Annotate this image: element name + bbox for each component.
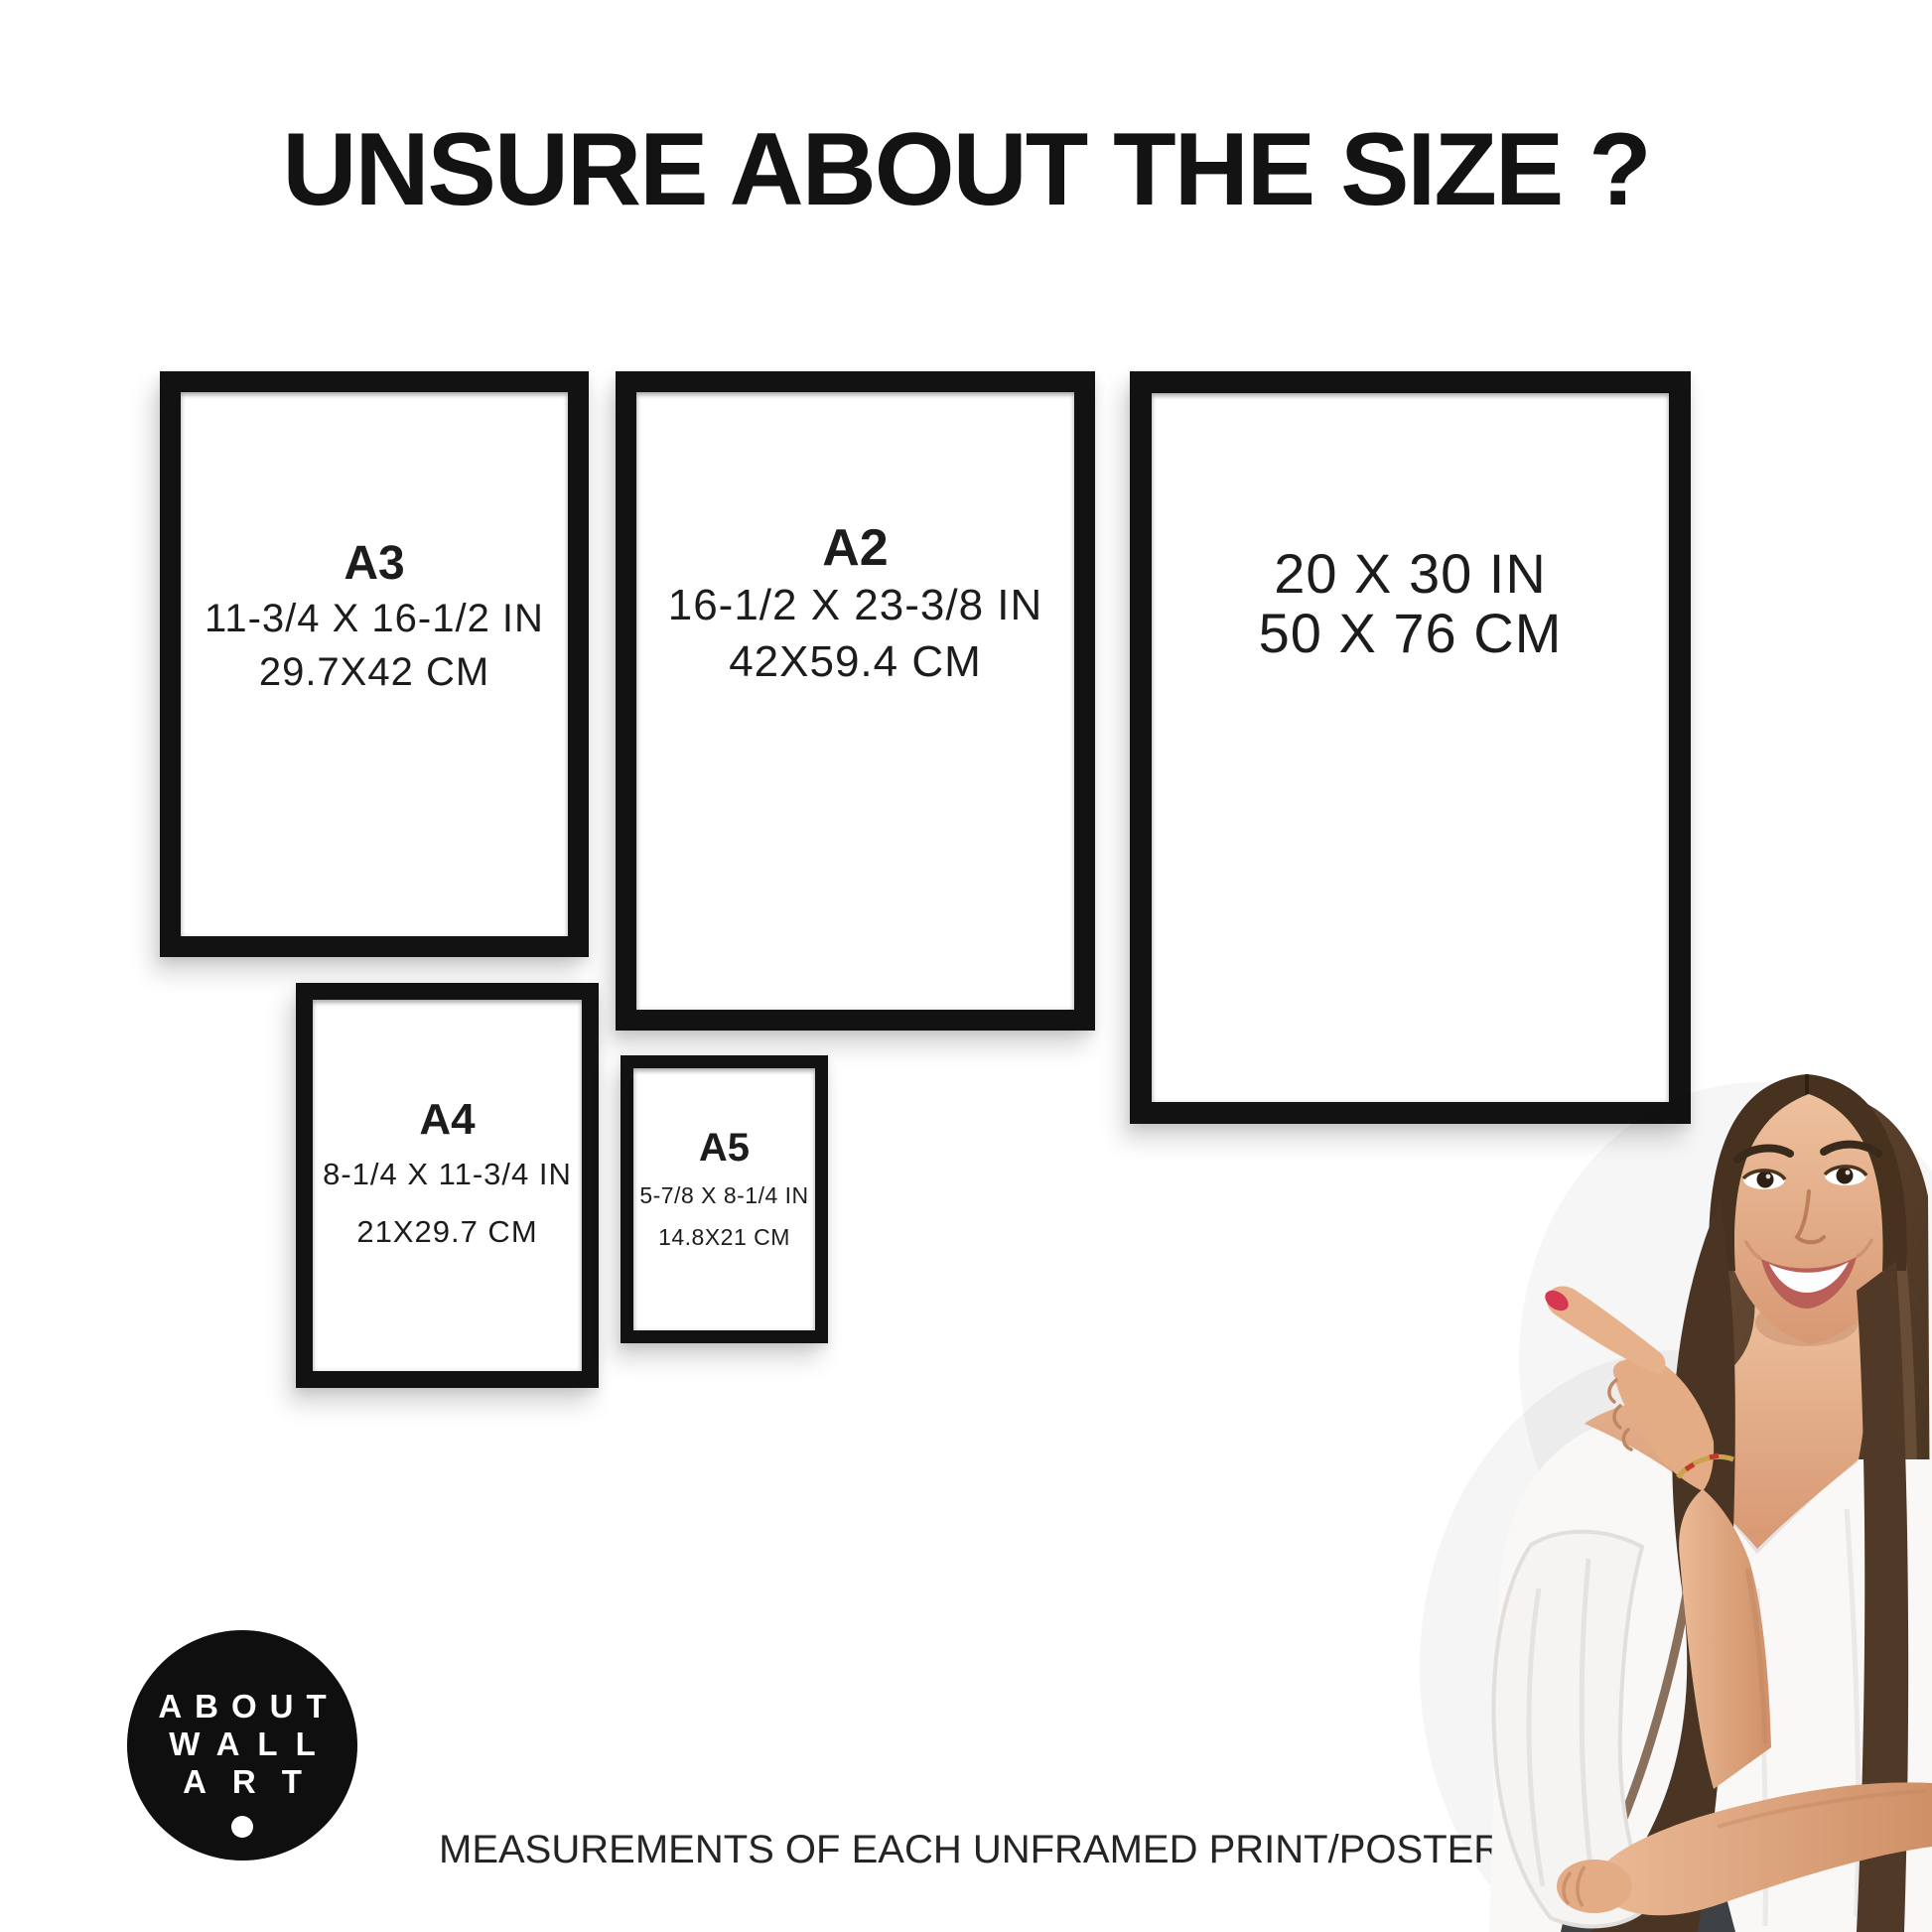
frame-a4-size-inches: 8-1/4 X 11-3/4 IN [313,1146,582,1203]
frame-a3-size-inches: 11-3/4 X 16-1/2 IN [181,592,568,645]
frame-a2-label: A2 [636,519,1074,577]
logo-text-art: ART [183,1763,328,1801]
left-eye [1743,1170,1785,1189]
frame-a5-text: A5 5-7/8 X 8-1/4 IN 14.8X21 CM [633,1125,815,1254]
frame-a4: A4 8-1/4 X 11-3/4 IN 21X29.7 CM [296,983,599,1388]
frame-a2-text: A2 16-1/2 X 23-3/8 IN 42X59.4 CM [636,519,1074,690]
frame-a3: A3 11-3/4 X 16-1/2 IN 29.7X42 CM [160,371,589,957]
logo-text-wall: WALL [169,1725,333,1763]
size-guide-poster: UNSURE ABOUT THE SIZE ? A3 11-3/4 X 16-1… [0,0,1932,1932]
frame-20x30-size-inches: 20 X 30 IN [1152,544,1669,604]
logo-text-about: ABOUT [158,1688,339,1725]
brand-logo: ABOUT WALL ART [127,1630,357,1861]
frame-a2-size-cm: 42X59.4 CM [636,633,1074,690]
frame-a5-size-inches: 5-7/8 X 8-1/4 IN [633,1171,815,1220]
frame-a5-size-cm: 14.8X21 CM [633,1220,815,1254]
right-eye [1825,1166,1866,1185]
logo-dot-icon [231,1816,253,1838]
frame-a5: A5 5-7/8 X 8-1/4 IN 14.8X21 CM [621,1055,828,1343]
frame-a3-label: A3 [181,536,568,592]
woman-photo [1162,1033,1932,1932]
frame-a5-label: A5 [633,1125,815,1171]
frame-a4-text: A4 8-1/4 X 11-3/4 IN 21X29.7 CM [313,1094,582,1261]
frame-20x30-size-cm: 50 X 76 CM [1152,604,1669,663]
frame-a4-size-cm: 21X29.7 CM [313,1203,582,1261]
frame-20x30: 20 X 30 IN 50 X 76 CM [1130,371,1691,1124]
frame-a2: A2 16-1/2 X 23-3/8 IN 42X59.4 CM [616,371,1095,1031]
frame-a4-label: A4 [313,1094,582,1146]
frame-a3-text: A3 11-3/4 X 16-1/2 IN 29.7X42 CM [181,536,568,699]
frame-a3-size-cm: 29.7X42 CM [181,645,568,699]
page-title: UNSURE ABOUT THE SIZE ? [0,111,1932,229]
frame-a2-size-inches: 16-1/2 X 23-3/8 IN [636,577,1074,633]
frame-20x30-text: 20 X 30 IN 50 X 76 CM [1152,544,1669,663]
